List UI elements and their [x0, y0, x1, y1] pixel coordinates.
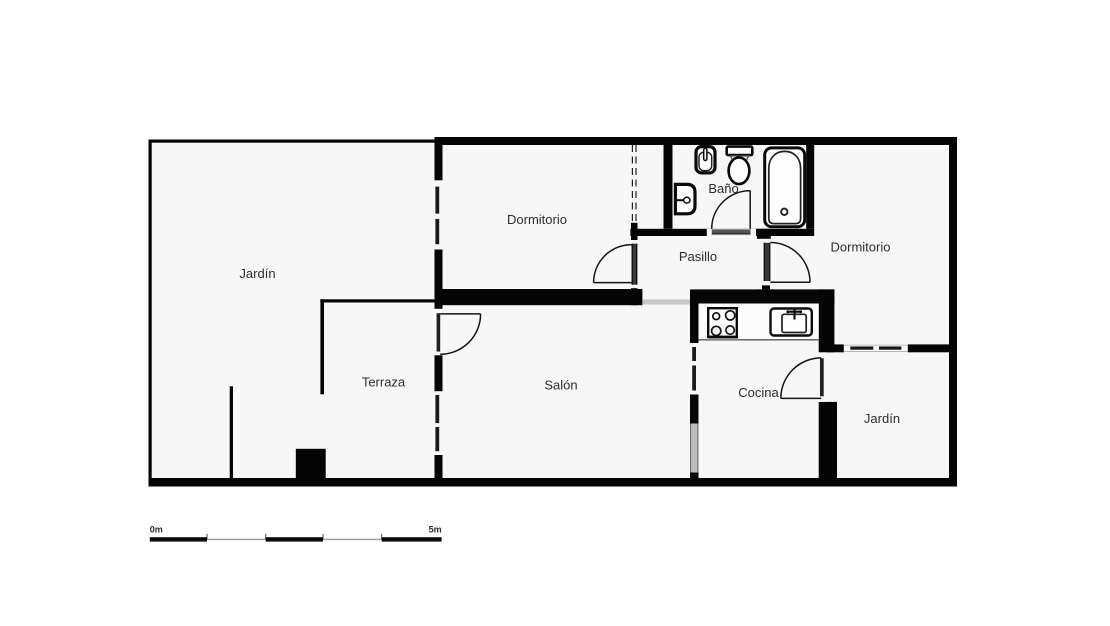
svg-text:Dormitorio: Dormitorio: [831, 240, 891, 255]
svg-text:Terraza: Terraza: [362, 375, 406, 390]
svg-text:Jardín: Jardín: [864, 411, 900, 426]
svg-text:0m: 0m: [150, 524, 163, 534]
svg-text:Dormitorio: Dormitorio: [507, 212, 567, 227]
svg-text:Baño: Baño: [708, 181, 738, 196]
svg-text:Jardín: Jardín: [239, 266, 275, 281]
svg-text:5m: 5m: [429, 524, 442, 534]
svg-text:Salón: Salón: [544, 378, 577, 393]
svg-text:Pasillo: Pasillo: [679, 249, 717, 264]
svg-text:Cocina: Cocina: [738, 385, 779, 400]
